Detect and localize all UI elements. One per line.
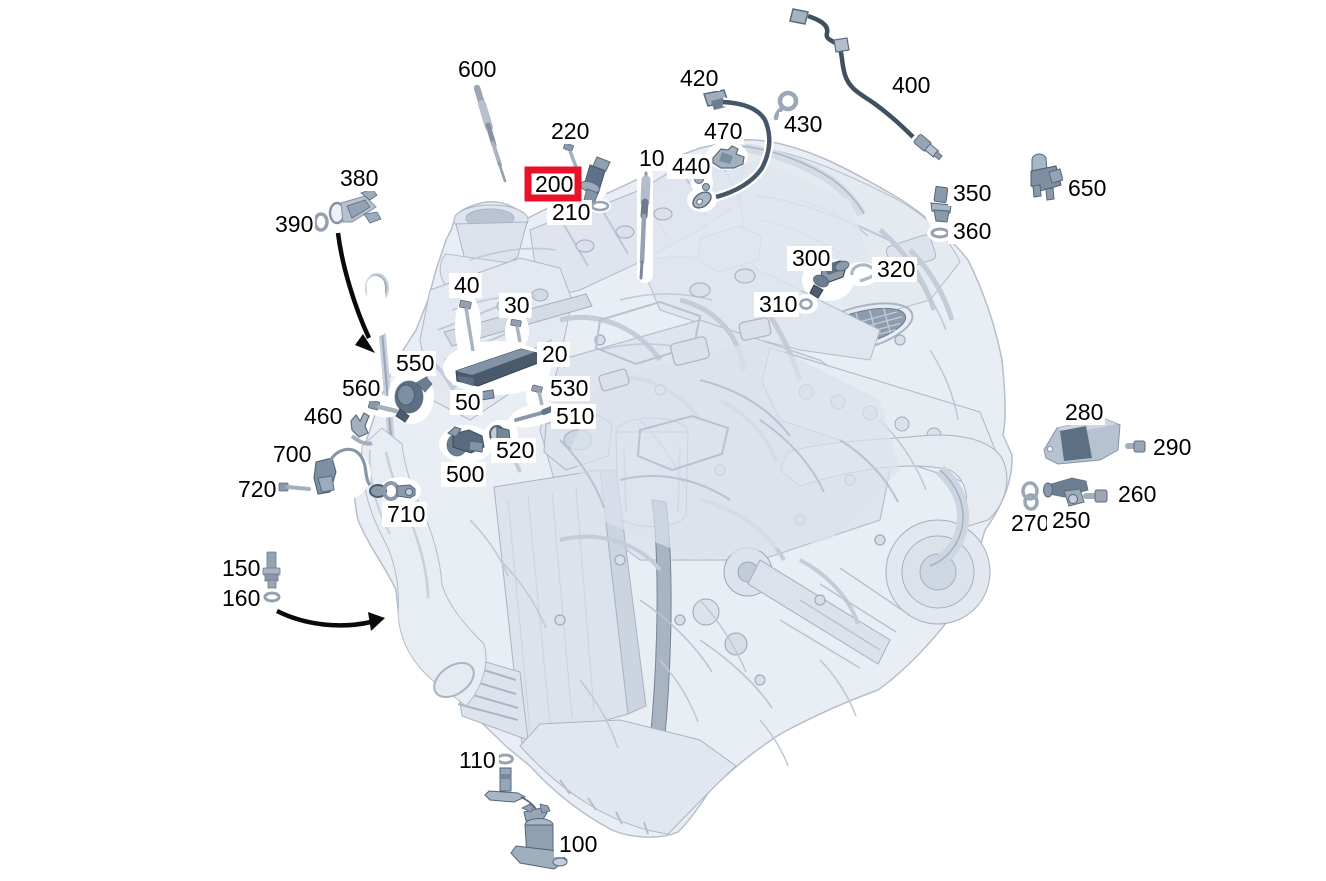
- svg-text:550: 550: [396, 350, 434, 376]
- svg-text:50: 50: [455, 389, 481, 415]
- svg-text:720: 720: [238, 476, 276, 502]
- svg-text:530: 530: [550, 375, 588, 401]
- svg-text:30: 30: [504, 292, 530, 318]
- svg-text:100: 100: [559, 831, 597, 857]
- svg-text:150: 150: [222, 555, 260, 581]
- svg-text:210: 210: [552, 199, 590, 225]
- svg-text:310: 310: [759, 291, 797, 317]
- svg-text:220: 220: [551, 118, 589, 144]
- svg-text:510: 510: [556, 403, 594, 429]
- svg-text:260: 260: [1118, 481, 1156, 507]
- svg-text:400: 400: [892, 72, 930, 98]
- svg-text:200: 200: [535, 171, 573, 197]
- svg-text:10: 10: [639, 145, 665, 171]
- svg-text:40: 40: [454, 272, 480, 298]
- svg-text:520: 520: [496, 437, 534, 463]
- svg-text:300: 300: [792, 245, 830, 271]
- svg-text:460: 460: [304, 403, 342, 429]
- svg-text:110: 110: [459, 747, 496, 773]
- svg-text:280: 280: [1065, 399, 1103, 425]
- svg-text:700: 700: [273, 441, 311, 467]
- svg-text:420: 420: [680, 65, 718, 91]
- svg-text:250: 250: [1052, 507, 1090, 533]
- svg-text:650: 650: [1068, 175, 1106, 201]
- svg-text:560: 560: [342, 375, 380, 401]
- svg-text:440: 440: [672, 153, 710, 179]
- svg-text:380: 380: [340, 165, 378, 191]
- svg-text:360: 360: [953, 218, 991, 244]
- svg-text:600: 600: [458, 56, 496, 82]
- svg-text:710: 710: [387, 501, 425, 527]
- svg-text:500: 500: [446, 461, 484, 487]
- svg-text:320: 320: [877, 256, 915, 282]
- svg-text:350: 350: [953, 180, 991, 206]
- svg-text:470: 470: [704, 118, 742, 144]
- svg-text:160: 160: [222, 585, 260, 611]
- svg-text:430: 430: [784, 111, 822, 137]
- svg-text:20: 20: [542, 341, 568, 367]
- svg-text:390: 390: [275, 211, 313, 237]
- svg-text:270: 270: [1011, 510, 1049, 536]
- svg-text:290: 290: [1153, 434, 1191, 460]
